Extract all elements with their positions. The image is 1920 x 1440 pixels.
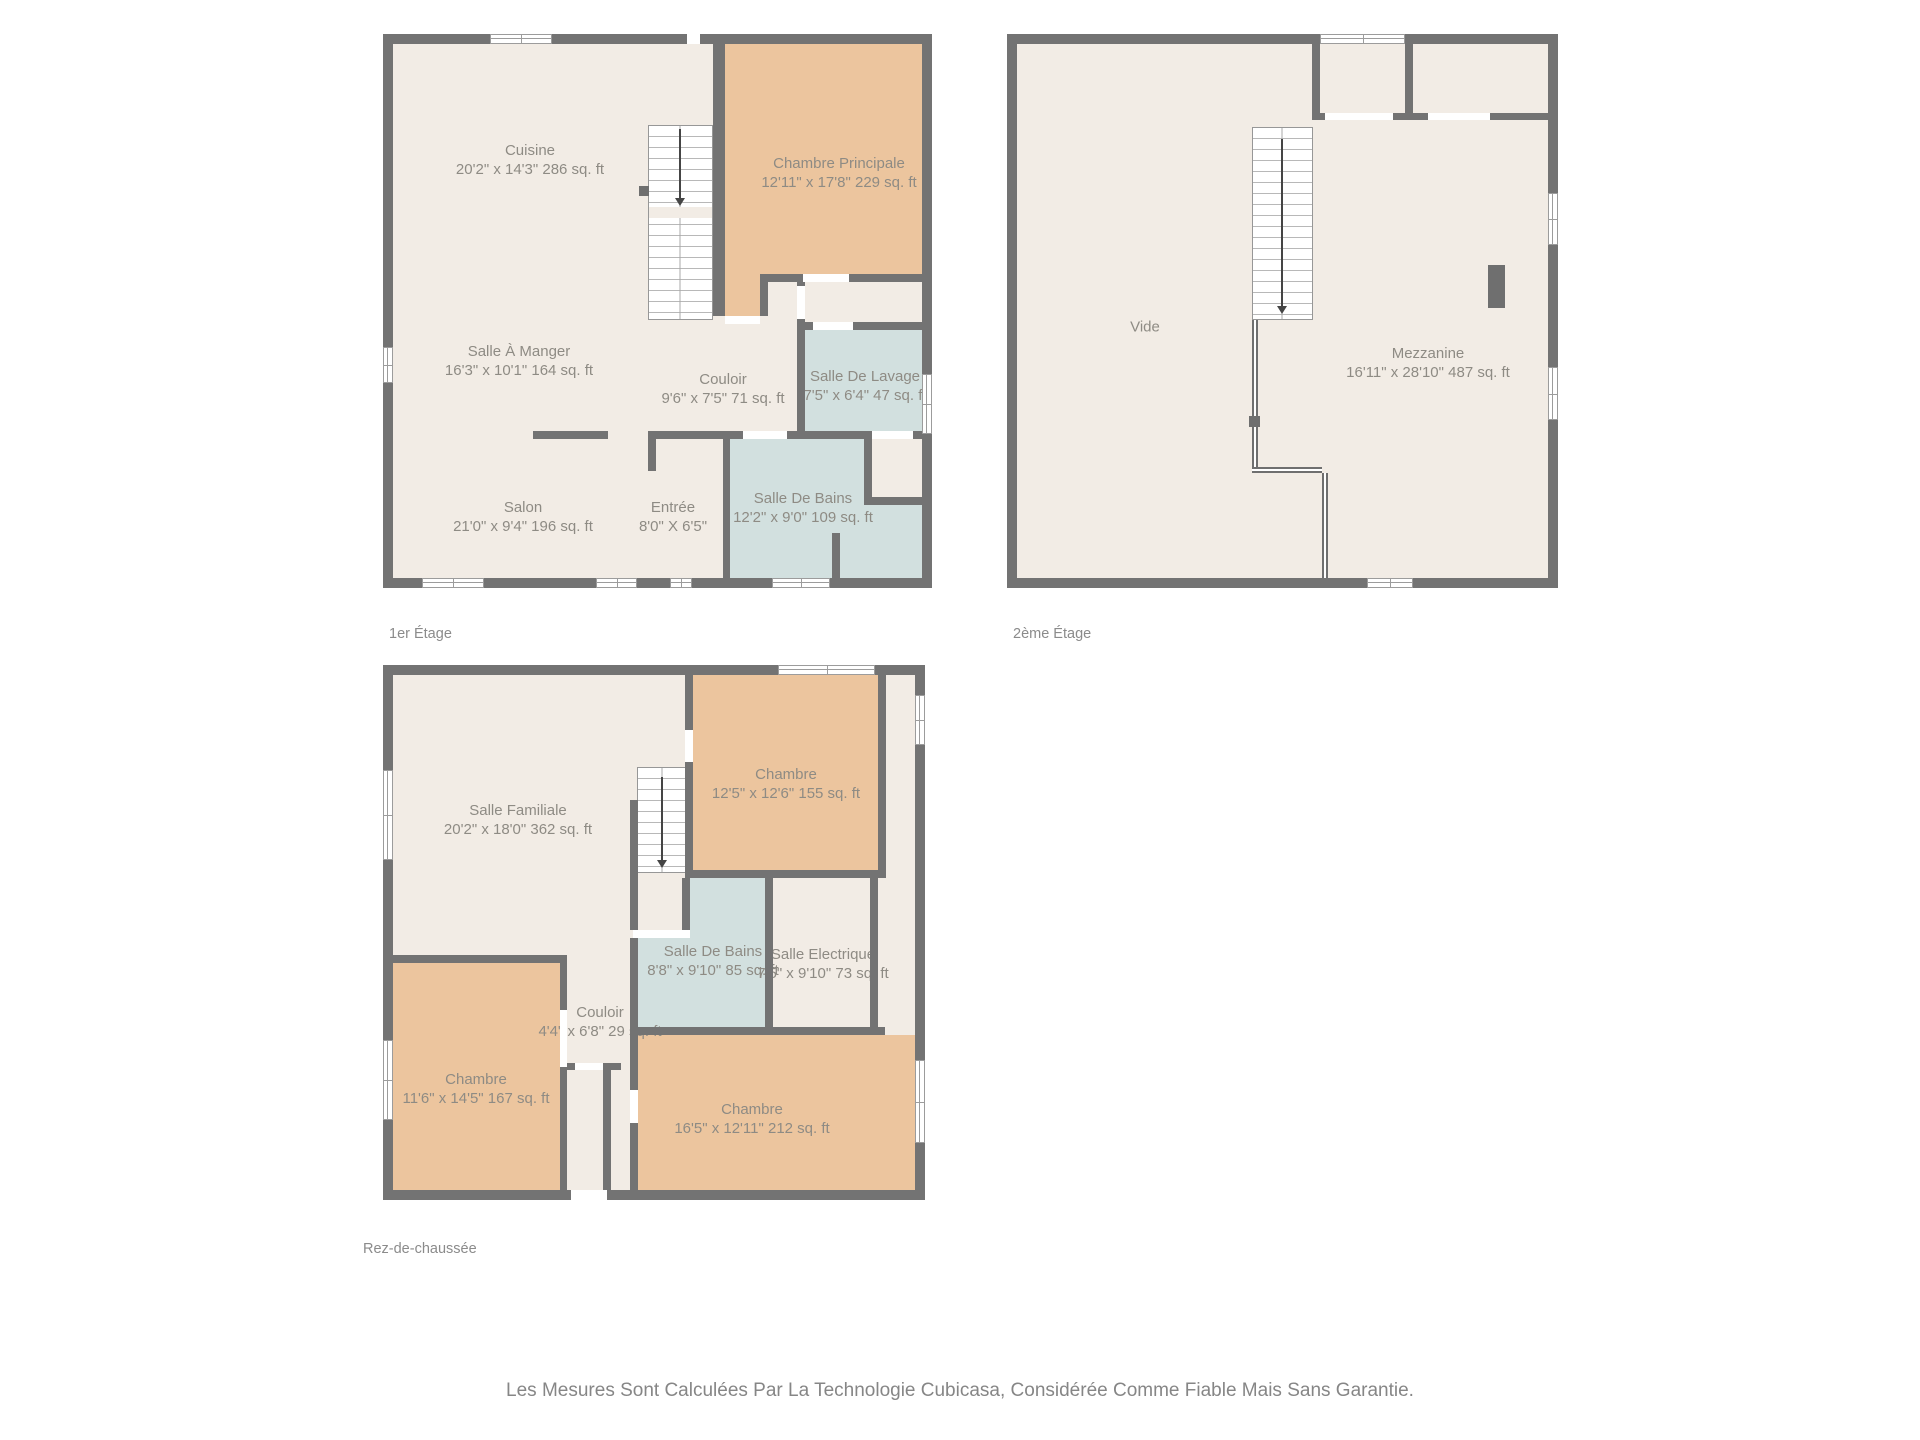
door-opening xyxy=(743,431,787,439)
door-opening xyxy=(1325,113,1393,120)
wall xyxy=(630,1035,638,1090)
wall xyxy=(383,34,932,44)
floor-title-second-floor: 2ème Étage xyxy=(1013,626,1091,642)
wall xyxy=(853,322,922,330)
door-opening xyxy=(571,1190,607,1200)
room-label-chambre-principale: Chambre Principale 12'11" x 17'8" 229 sq… xyxy=(761,154,916,192)
window xyxy=(383,347,393,383)
wall xyxy=(685,870,886,878)
door-opening xyxy=(813,322,853,330)
room-name: Couloir xyxy=(661,370,784,389)
door-opening xyxy=(1428,113,1490,120)
wall xyxy=(864,439,872,497)
room-label-chambre-bottom-right: Chambre 16'5" x 12'11" 212 sq. ft xyxy=(674,1100,829,1138)
room-label-chambre-top-right: Chambre 12'5" x 12'6" 155 sq. ft xyxy=(712,765,860,803)
window xyxy=(778,665,875,675)
window xyxy=(670,578,692,588)
room-dims: 8'0" X 6'5" xyxy=(639,517,707,536)
room-dims: 16'11" x 28'10" 487 sq. ft xyxy=(1346,363,1510,382)
room-label-salle-a-manger: Salle À Manger 16'3" x 10'1" 164 sq. ft xyxy=(445,342,593,380)
room-name: Chambre xyxy=(674,1100,829,1119)
room-name: Chambre xyxy=(402,1070,549,1089)
window xyxy=(915,695,925,745)
door-opening xyxy=(633,930,690,938)
room-label-mezzanine: Mezzanine 16'11" x 28'10" 487 sq. ft xyxy=(1346,344,1510,382)
window xyxy=(490,34,552,44)
window xyxy=(1548,193,1558,245)
wall xyxy=(560,1067,567,1190)
wall xyxy=(765,878,773,1035)
railing xyxy=(1252,320,1258,467)
wall xyxy=(383,1190,925,1200)
floor-title-ground-floor: Rez-de-chaussée xyxy=(363,1241,477,1257)
chimney-block xyxy=(1488,265,1505,308)
wall xyxy=(1007,34,1558,44)
wall xyxy=(1007,34,1017,588)
wall xyxy=(723,439,730,578)
wall xyxy=(533,431,608,439)
window xyxy=(1548,367,1558,420)
floor-plan-page: { "disclaimer": "Les Mesures Sont Calcul… xyxy=(0,0,1920,1440)
stair-landing xyxy=(649,207,712,218)
room-label-entree: Entrée 8'0" X 6'5" xyxy=(639,498,707,536)
wall xyxy=(849,274,922,282)
stairs-down-arrow-icon xyxy=(661,777,663,861)
wall xyxy=(760,282,768,316)
room-name: Salle De Lavage xyxy=(803,367,926,386)
room-name: Entrée xyxy=(639,498,707,517)
window xyxy=(1320,34,1405,44)
room-label-couloir: Couloir 9'6" x 7'5" 71 sq. ft xyxy=(661,370,784,408)
door-opening xyxy=(630,1090,638,1123)
room-chambre-principale-alcove xyxy=(725,274,760,316)
room-name: Salle Familiale xyxy=(444,801,592,820)
window xyxy=(383,770,393,860)
wall xyxy=(870,878,878,1035)
wall xyxy=(630,800,638,930)
window xyxy=(596,578,637,588)
room-label-salle-electrique: Salle Electrique 7'5" x 9'10" 73 sq. ft xyxy=(757,945,888,983)
wall xyxy=(864,497,922,505)
handrail-post xyxy=(1249,416,1260,427)
wall xyxy=(393,955,567,963)
room-name: Salle Electrique xyxy=(757,945,888,964)
room-label-couloir: Couloir 4'4" x 6'8" 29 sq. ft xyxy=(538,1003,661,1041)
room-label-salle-de-bains: Salle De Bains 12'2" x 9'0" 109 sq. ft xyxy=(733,489,873,527)
wall xyxy=(1490,113,1548,120)
wall xyxy=(1405,44,1413,113)
room-name: Cuisine xyxy=(456,141,604,160)
window xyxy=(422,578,484,588)
room-label-vide: Vide xyxy=(1130,318,1160,337)
door-opening xyxy=(560,1010,567,1067)
room-label-chambre-left: Chambre 11'6" x 14'5" 167 sq. ft xyxy=(402,1070,549,1108)
wall xyxy=(630,1027,885,1035)
room-dims: 16'3" x 10'1" 164 sq. ft xyxy=(445,361,593,380)
door-opening xyxy=(872,431,913,439)
room-dims: 7'5" x 6'4" 47 sq. ft xyxy=(803,386,926,405)
wall xyxy=(682,878,690,938)
bathroom-closet-nook xyxy=(872,439,922,497)
room-dims: 12'5" x 12'6" 155 sq. ft xyxy=(712,784,860,803)
floor-title-first-floor: 1er Étage xyxy=(389,626,452,642)
window xyxy=(922,374,932,434)
room-label-cuisine: Cuisine 20'2" x 14'3" 286 sq. ft xyxy=(456,141,604,179)
wall xyxy=(685,675,693,730)
wall xyxy=(713,44,725,316)
wall xyxy=(648,439,656,471)
wall xyxy=(878,675,886,878)
stairs-down-arrow-icon xyxy=(1281,139,1283,307)
room-label-salle-de-lavage: Salle De Lavage 7'5" x 6'4" 47 sq. ft xyxy=(803,367,926,405)
stairs-down-arrow-icon xyxy=(679,129,681,199)
wall xyxy=(1312,44,1320,113)
room-dims: 20'2" x 18'0" 362 sq. ft xyxy=(444,820,592,839)
room-name: Chambre xyxy=(712,765,860,784)
room-dims: 20'2" x 14'3" 286 sq. ft xyxy=(456,160,604,179)
floor-plan-ground-floor: Salle Familiale 20'2" x 18'0" 362 sq. ft… xyxy=(383,665,925,1200)
wall xyxy=(797,319,805,439)
wall xyxy=(1548,34,1558,588)
wall xyxy=(832,533,840,578)
window xyxy=(1367,578,1413,588)
room-name: Couloir xyxy=(538,1003,661,1022)
wall xyxy=(913,431,922,439)
window xyxy=(772,578,830,588)
wall-opening xyxy=(687,34,700,44)
wall xyxy=(805,322,813,330)
door-opening xyxy=(803,274,849,282)
wall xyxy=(685,762,693,870)
handrail-post xyxy=(639,186,649,196)
door-opening xyxy=(725,316,760,324)
room-name: Vide xyxy=(1130,318,1160,337)
wall xyxy=(630,938,638,1035)
wall xyxy=(1007,578,1558,588)
room-dims: 9'6" x 7'5" 71 sq. ft xyxy=(661,389,784,408)
room-name: Chambre Principale xyxy=(761,154,916,173)
door-opening xyxy=(685,730,693,762)
room-name: Salon xyxy=(453,498,593,517)
window xyxy=(915,1060,925,1143)
door-opening xyxy=(575,1063,603,1070)
wall xyxy=(760,274,803,282)
room-label-salon: Salon 21'0" x 9'4" 196 sq. ft xyxy=(453,498,593,536)
floor-plan-first-floor: Cuisine 20'2" x 14'3" 286 sq. ft Chambre… xyxy=(383,34,932,588)
room-dims: 11'6" x 14'5" 167 sq. ft xyxy=(402,1089,549,1108)
wall xyxy=(648,431,743,439)
wall xyxy=(1312,113,1325,120)
door-opening xyxy=(797,286,805,319)
room-dims: 12'11" x 17'8" 229 sq. ft xyxy=(761,173,916,192)
wall xyxy=(603,1070,611,1190)
room-dims: 12'2" x 9'0" 109 sq. ft xyxy=(733,508,873,527)
room-name: Salle De Bains xyxy=(733,489,873,508)
railing xyxy=(1252,467,1322,473)
wall xyxy=(383,34,393,588)
room-label-salle-familiale: Salle Familiale 20'2" x 18'0" 362 sq. ft xyxy=(444,801,592,839)
wall xyxy=(630,1123,638,1190)
room-dims: 21'0" x 9'4" 196 sq. ft xyxy=(453,517,593,536)
wall xyxy=(560,955,567,1010)
wall xyxy=(1393,113,1428,120)
window xyxy=(383,1040,393,1120)
wall xyxy=(603,1063,621,1070)
room-dims: 7'5" x 9'10" 73 sq. ft xyxy=(757,964,888,983)
disclaimer-text: Les Mesures Sont Calculées Par La Techno… xyxy=(0,1380,1920,1402)
wall xyxy=(922,34,932,588)
wall xyxy=(787,431,872,439)
railing xyxy=(1322,473,1328,578)
room-dims: 16'5" x 12'11" 212 sq. ft xyxy=(674,1119,829,1138)
room-name: Salle À Manger xyxy=(445,342,593,361)
room-name: Mezzanine xyxy=(1346,344,1510,363)
floor-plan-second-floor: Vide Mezzanine 16'11" x 28'10" 487 sq. f… xyxy=(1007,34,1558,588)
